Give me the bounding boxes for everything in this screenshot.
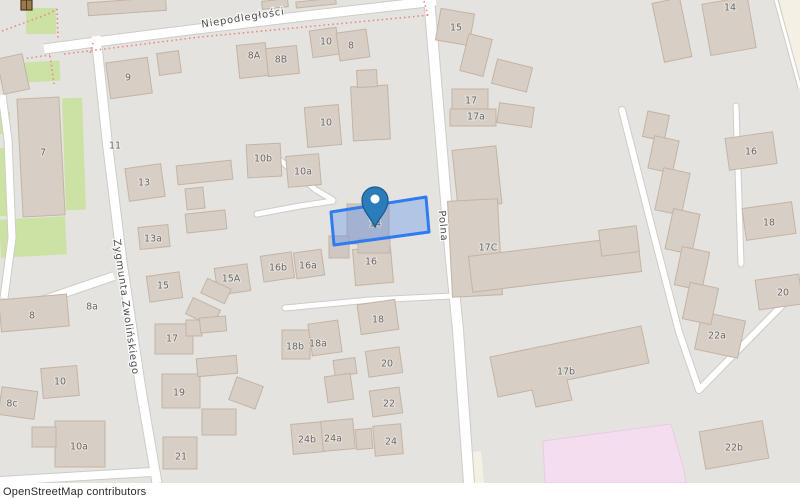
building-number-label: 14 (724, 3, 736, 14)
building-number-label: 19 (173, 388, 185, 399)
building-number-label: 8 (29, 311, 35, 322)
building (357, 69, 378, 87)
building-number-label: 9 (125, 73, 131, 84)
building-number-label: 8A (248, 51, 261, 62)
building-number-label: 16b (269, 263, 287, 274)
building (157, 51, 182, 76)
building-number-label: 10a (294, 167, 312, 178)
building-number-label: 17b (557, 367, 575, 378)
building-number-label: 10 (320, 118, 332, 129)
building-number-label: 20 (777, 288, 789, 299)
building (32, 427, 56, 447)
building-number-label: 18 (372, 315, 384, 326)
building (324, 373, 353, 402)
building (185, 187, 205, 210)
attribution-bar: OpenStreetMap contributors (0, 483, 800, 500)
building-number-label: 10 (54, 377, 66, 388)
building (599, 226, 640, 256)
building (351, 85, 391, 141)
building-number-label: 24 (385, 437, 397, 448)
building-number-label: 15 (450, 23, 462, 34)
building-number-label: 22 (383, 399, 395, 410)
building-number-label: 10 (320, 37, 332, 48)
building-number-label: 16 (745, 147, 757, 158)
building (185, 210, 227, 233)
building-number-label: 16 (365, 257, 377, 268)
building-number-label: 11 (109, 141, 121, 152)
building-number-label: 10a (70, 442, 88, 453)
building-number-label: 16a (299, 261, 317, 272)
building (497, 103, 534, 128)
grass-area (62, 98, 86, 211)
building-number-label: 22b (725, 443, 743, 454)
building-number-label: 13a (144, 234, 162, 245)
building-number-label: 24b (298, 435, 316, 446)
building (196, 355, 237, 376)
building-number-label: 17C (479, 243, 498, 254)
map-canvas[interactable]: 98A8B1087111010b10a1313a151717a141618202… (0, 0, 800, 483)
building-number-label: 18a (309, 339, 327, 350)
building-number-label: 13 (138, 178, 150, 189)
grass-area (26, 8, 56, 34)
building-number-label: 24a (324, 434, 342, 445)
building (202, 409, 236, 435)
map-marker-pin-hole (371, 195, 380, 204)
building-number-label: 15A (222, 274, 241, 285)
building-number-label: 17 (166, 334, 178, 345)
attribution-link[interactable]: OpenStreetMap contributors (0, 486, 146, 498)
building-number-label: 22a (708, 331, 726, 342)
building-number-label: 8 (348, 41, 354, 52)
building-number-label: 7 (40, 148, 46, 159)
map-view[interactable]: 98A8B1087111010b10a1313a151717a141618202… (0, 0, 800, 483)
building-number-label: 20 (381, 359, 393, 370)
building-number-label: 8a (86, 302, 98, 313)
building (355, 428, 373, 449)
building-number-label: 18b (286, 342, 304, 353)
building-number-label: 17 (465, 96, 477, 107)
building (199, 316, 226, 333)
building-number-label: 8c (6, 399, 17, 410)
building-number-label: 10b (254, 154, 272, 165)
building-number-label: 21 (175, 452, 187, 463)
building-number-label: 15 (157, 281, 169, 292)
building-number-label: 8B (275, 55, 288, 66)
building-number-label: 18 (763, 218, 775, 229)
building-number-label: 17a (467, 112, 485, 123)
